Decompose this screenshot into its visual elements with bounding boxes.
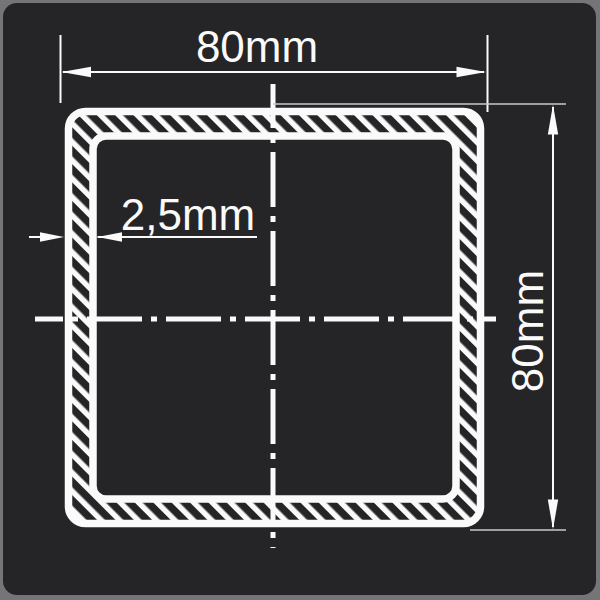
tube-cross-section-drawing: 80mm 80mm 2,5mm [0,0,600,600]
drawing-stage: 80mm 80mm 2,5mm [0,0,600,600]
width-dimension-label: 80mm [196,22,318,71]
height-dimension-label: 80mm [503,270,552,392]
thickness-dimension-label: 2,5mm [121,190,255,239]
